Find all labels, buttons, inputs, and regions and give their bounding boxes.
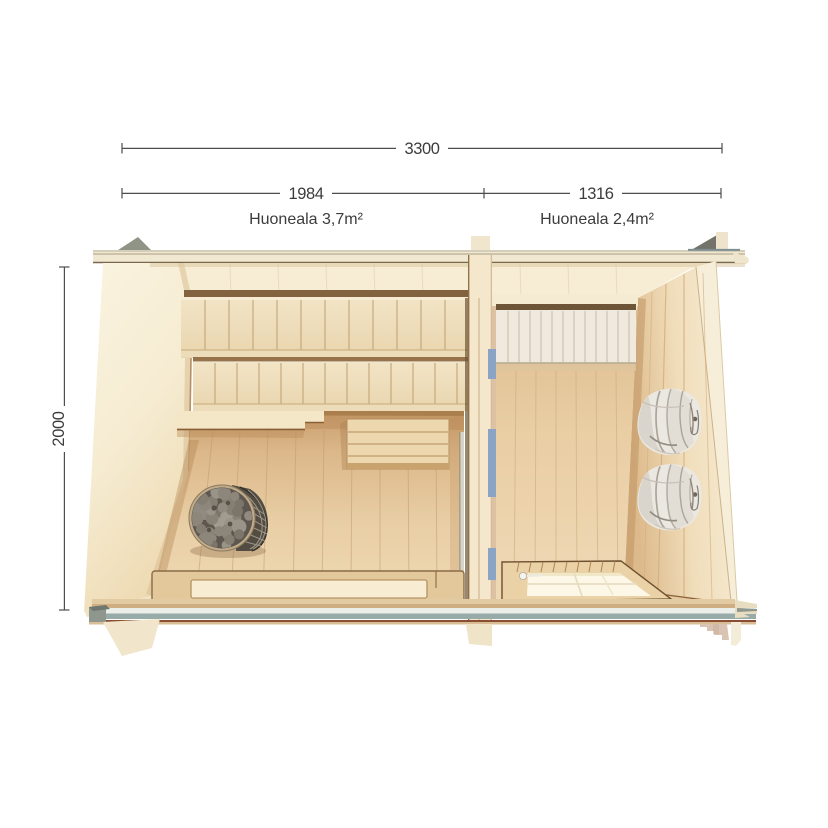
svg-text:Huoneala 3,7m²: Huoneala 3,7m²: [249, 211, 364, 228]
svg-text:Huoneala 2,4m²: Huoneala 2,4m²: [540, 211, 655, 228]
svg-text:1984: 1984: [288, 185, 323, 203]
svg-text:3300: 3300: [404, 140, 439, 158]
svg-text:1316: 1316: [578, 185, 613, 203]
svg-text:2000: 2000: [50, 411, 68, 446]
